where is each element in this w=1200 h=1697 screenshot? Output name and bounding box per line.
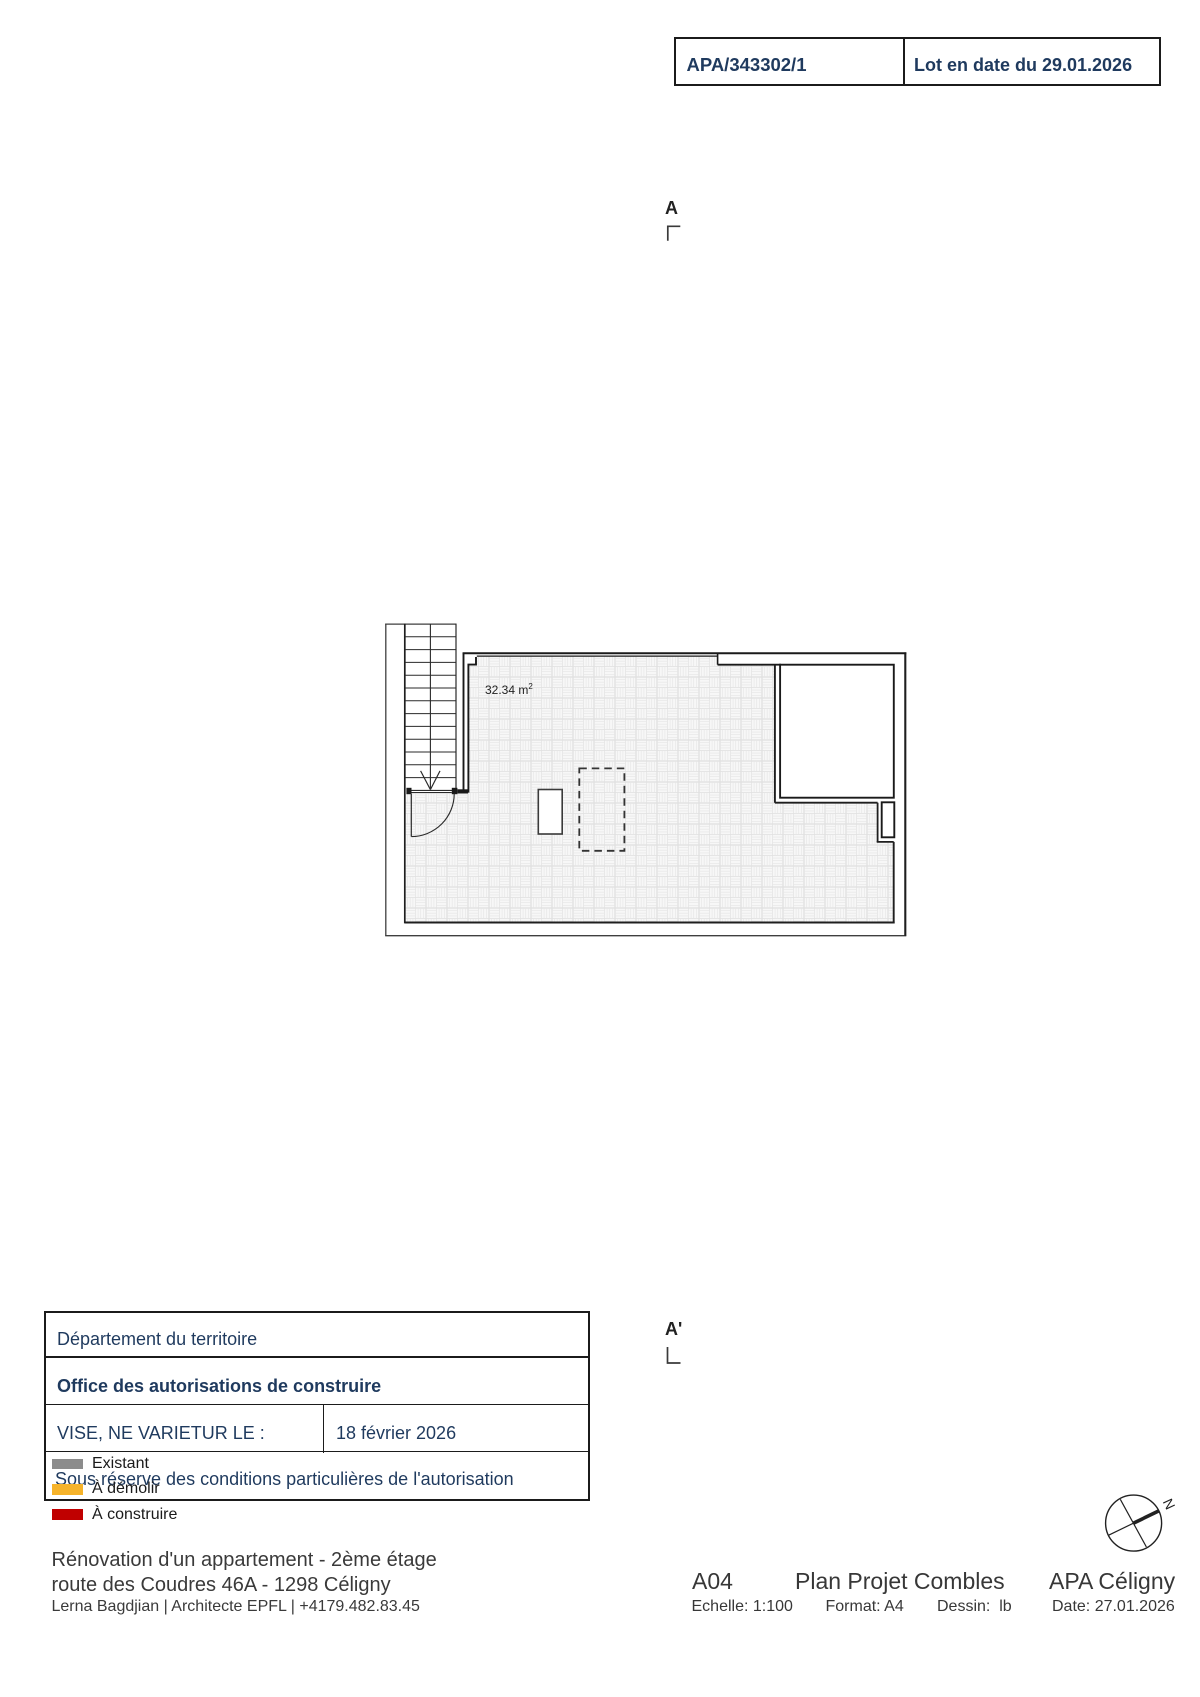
svg-text:N: N [1160, 1496, 1179, 1512]
